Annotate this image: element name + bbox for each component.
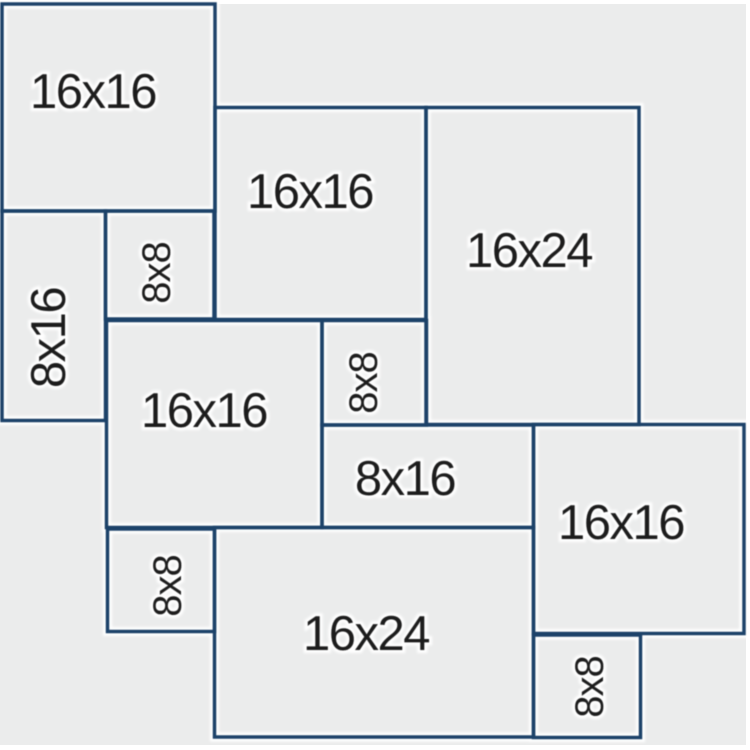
svg-text:8x16: 8x16	[355, 452, 456, 506]
svg-text:8x8: 8x8	[135, 242, 179, 304]
svg-text:16x16: 16x16	[141, 384, 267, 438]
svg-text:8x16: 8x16	[22, 288, 76, 389]
svg-text:8x8: 8x8	[146, 555, 190, 617]
svg-text:16x16: 16x16	[247, 165, 373, 219]
svg-text:8x8: 8x8	[568, 656, 612, 718]
svg-text:16x16: 16x16	[558, 496, 684, 550]
svg-text:16x16: 16x16	[30, 65, 156, 119]
svg-text:16x24: 16x24	[466, 224, 592, 278]
svg-text:8x8: 8x8	[342, 352, 386, 414]
svg-text:16x24: 16x24	[303, 607, 429, 661]
